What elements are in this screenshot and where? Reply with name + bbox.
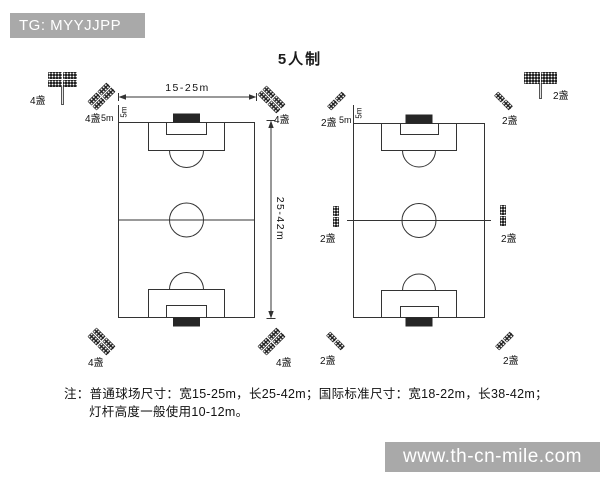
- light-pole: [61, 86, 64, 105]
- corner-light-count-label: 2盏: [502, 112, 518, 127]
- side-light-count-label: 2盏: [501, 230, 517, 245]
- right-bottom-goal: [406, 318, 433, 327]
- pole-light-count-label: 4盏: [30, 92, 46, 107]
- left-top-goal: [173, 114, 200, 123]
- lamp-icon: [541, 72, 557, 84]
- lamp-icon: [48, 80, 62, 87]
- corner-light-count-label: 4盏: [88, 354, 104, 369]
- lamp-icon: [500, 205, 506, 215]
- corner-light-count-label: 4盏: [274, 111, 290, 126]
- end-offset-label: 5m: [120, 106, 129, 117]
- floodlight-4-lamp-head-icon: [48, 72, 77, 87]
- side-offset-label: 5m: [339, 115, 352, 125]
- right-pitch: [347, 115, 491, 327]
- lamp-icon: [333, 206, 339, 216]
- floodlight-2-lamp-head-icon: [524, 72, 557, 84]
- end-offset-label: 5m: [355, 107, 364, 118]
- corner-light-count-label: 4盏: [276, 354, 292, 369]
- pole-light-count-label: 2盏: [553, 87, 569, 102]
- corner-light-count-label: 2盏: [503, 352, 519, 367]
- lamp-icon: [333, 217, 339, 227]
- lamp-icon: [524, 72, 540, 84]
- right-top-goal: [406, 115, 433, 124]
- left-pitch: [119, 114, 255, 327]
- lamp-icon: [63, 72, 77, 79]
- floodlight-pole-4-lamp: [48, 72, 77, 105]
- width-dimension-label: 15-25m: [118, 82, 257, 94]
- corner-light-count-label: 2盏: [320, 352, 336, 367]
- lamp-icon: [63, 80, 77, 87]
- lamp-icon: [500, 216, 506, 226]
- side-light-count-label: 2盏: [320, 230, 336, 245]
- corner-light-count-label: 4盏: [85, 110, 101, 125]
- corner-light-count-label: 2盏: [321, 114, 337, 129]
- light-pole: [539, 83, 542, 99]
- side-floodlight-2-left-icon: [333, 206, 339, 227]
- note-line-1: 注：普通球场尺寸：宽15-25m，长25-42m；国际标准尺寸：宽18-22m，…: [64, 383, 548, 402]
- side-offset-label: 5m: [101, 113, 114, 123]
- note-line-2: 灯杆高度一般使用10-12m。: [89, 401, 248, 420]
- lamp-icon: [48, 72, 62, 79]
- dimension-lines: [119, 93, 354, 319]
- left-bottom-goal: [173, 318, 200, 327]
- diagram-canvas: TG: MYYJJPP www.th-cn-mile.com 5人制: [0, 0, 600, 480]
- side-floodlight-2-right-icon: [500, 205, 506, 226]
- length-dimension-label: 25-42m: [274, 197, 286, 242]
